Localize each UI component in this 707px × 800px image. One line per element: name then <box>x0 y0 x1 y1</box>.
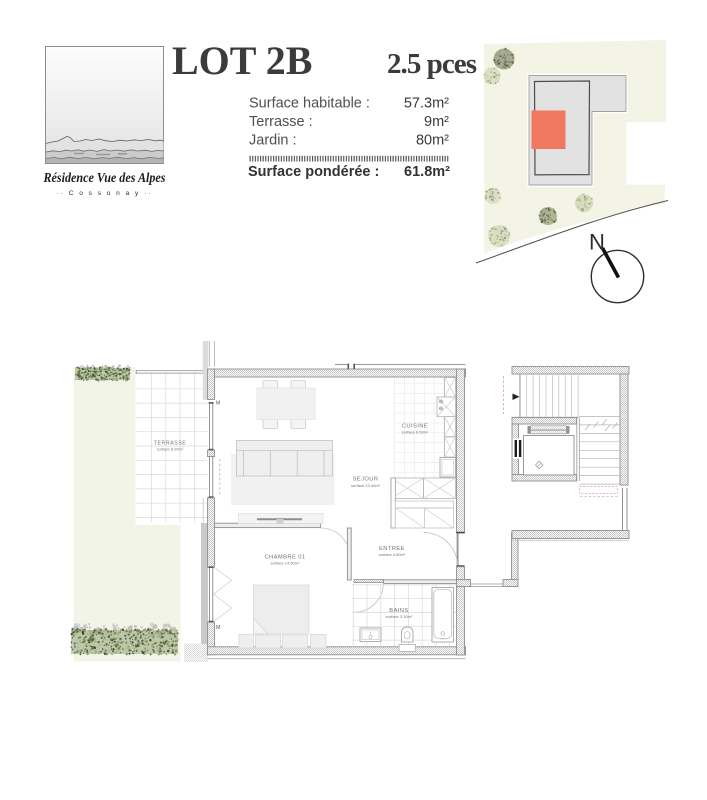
svg-text:surface 3.30m²: surface 3.30m² <box>386 614 413 619</box>
svg-text:Surface pondérée :: Surface pondérée : <box>248 164 379 180</box>
svg-text:LOT 2B: LOT 2B <box>172 38 312 83</box>
svg-text:surface 4.80m²: surface 4.80m² <box>379 552 406 557</box>
svg-text:surface 14.50m²: surface 14.50m² <box>271 561 301 566</box>
svg-text:M: M <box>216 400 220 406</box>
svg-text:80m²: 80m² <box>416 133 449 149</box>
svg-text:surface 6.50m²: surface 6.50m² <box>402 430 429 435</box>
svg-text:61.8m²: 61.8m² <box>404 164 450 180</box>
svg-text:surface 8.90m²: surface 8.90m² <box>157 447 184 452</box>
svg-text:M: M <box>216 625 220 631</box>
svg-text:N: N <box>589 230 605 255</box>
svg-text:57.3m²: 57.3m² <box>404 95 449 111</box>
svg-text:Terrasse :: Terrasse : <box>249 114 313 130</box>
svg-text:SEJOUR: SEJOUR <box>353 477 379 483</box>
svg-text:9m²: 9m² <box>424 114 449 130</box>
svg-text:·· C o s s o n a y ··: ·· C o s s o n a y ·· <box>57 190 153 197</box>
svg-text:2.5 pces: 2.5 pces <box>387 48 477 80</box>
svg-text:Surface habitable :: Surface habitable : <box>249 95 370 111</box>
svg-text:surface 23.40m²: surface 23.40m² <box>351 483 381 488</box>
svg-text:Jardin :: Jardin : <box>249 133 297 149</box>
svg-text:Résidence Vue des Alpes: Résidence Vue des Alpes <box>43 170 166 185</box>
